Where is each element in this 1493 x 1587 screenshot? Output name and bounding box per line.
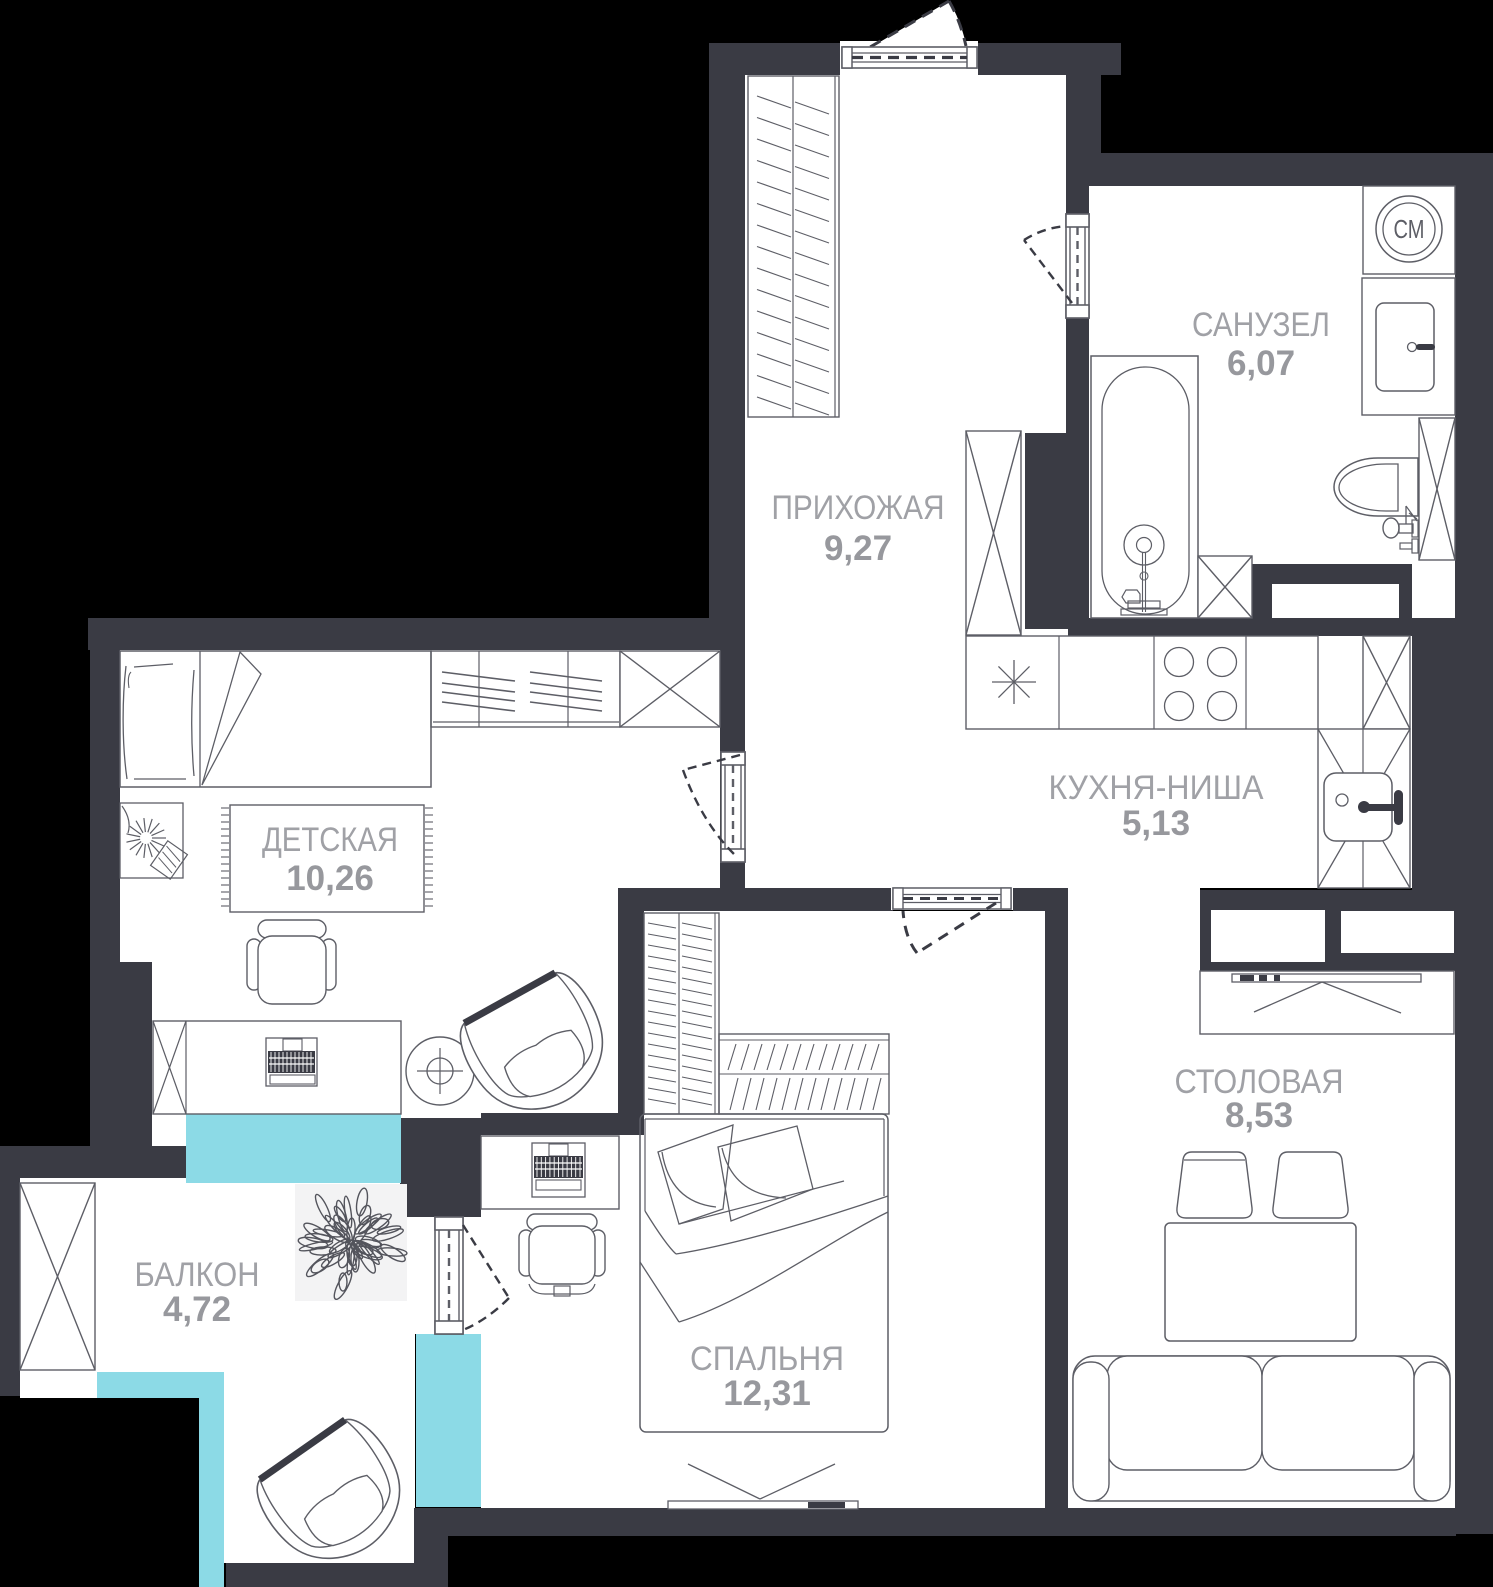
svg-text:6,07: 6,07 (1227, 344, 1295, 383)
svg-text:ПРИХОЖАЯ: ПРИХОЖАЯ (772, 489, 945, 527)
svg-text:12,31: 12,31 (723, 1374, 811, 1413)
svg-text:ДЕТСКАЯ: ДЕТСКАЯ (262, 821, 398, 859)
svg-text:9,27: 9,27 (824, 529, 892, 568)
svg-text:8,53: 8,53 (1225, 1096, 1293, 1135)
svg-text:10,26: 10,26 (286, 859, 374, 898)
svg-text:5,13: 5,13 (1122, 804, 1190, 843)
svg-text:СПАЛЬНЯ: СПАЛЬНЯ (690, 1340, 844, 1378)
svg-text:САНУЗЕЛ: САНУЗЕЛ (1192, 306, 1330, 344)
svg-text:СМ: СМ (1394, 214, 1425, 244)
svg-text:БАЛКОН: БАЛКОН (135, 1256, 260, 1294)
svg-text:4,72: 4,72 (163, 1290, 231, 1329)
svg-text:КУХНЯ-НИША: КУХНЯ-НИША (1049, 769, 1264, 807)
